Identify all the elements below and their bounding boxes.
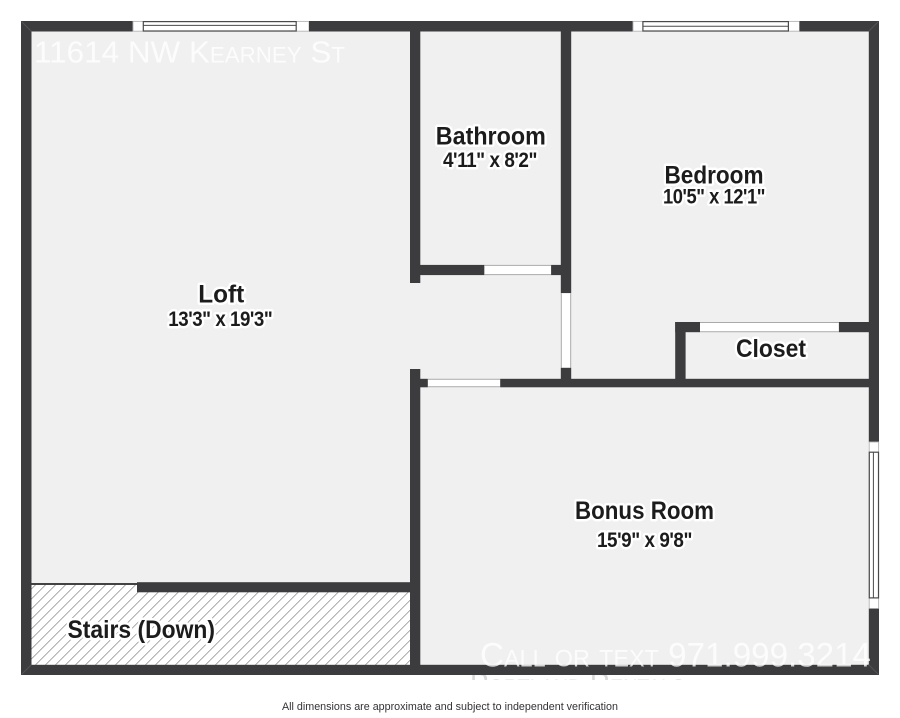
- svg-text:15'9" x 9'8": 15'9" x 9'8": [597, 529, 692, 552]
- svg-text:Closet: Closet: [736, 335, 807, 363]
- svg-text:10'5" x 12'1": 10'5" x 12'1": [663, 186, 765, 209]
- svg-text:11614 NW Kearney St: 11614 NW Kearney St: [34, 35, 345, 70]
- svg-text:13'3" x 19'3": 13'3" x 19'3": [168, 308, 272, 331]
- svg-text:Bathroom: Bathroom: [436, 123, 546, 151]
- svg-text:All dimensions are approximate: All dimensions are approximate and subje…: [282, 701, 618, 713]
- svg-text:Call or text 971.999.3214: Call or text 971.999.3214: [480, 637, 871, 675]
- svg-text:Stairs (Down): Stairs (Down): [68, 616, 216, 644]
- svg-text:Bonus Room: Bonus Room: [575, 497, 714, 525]
- svg-text:Loft: Loft: [198, 281, 245, 309]
- svg-text:4'11" x 8'2": 4'11" x 8'2": [443, 149, 537, 172]
